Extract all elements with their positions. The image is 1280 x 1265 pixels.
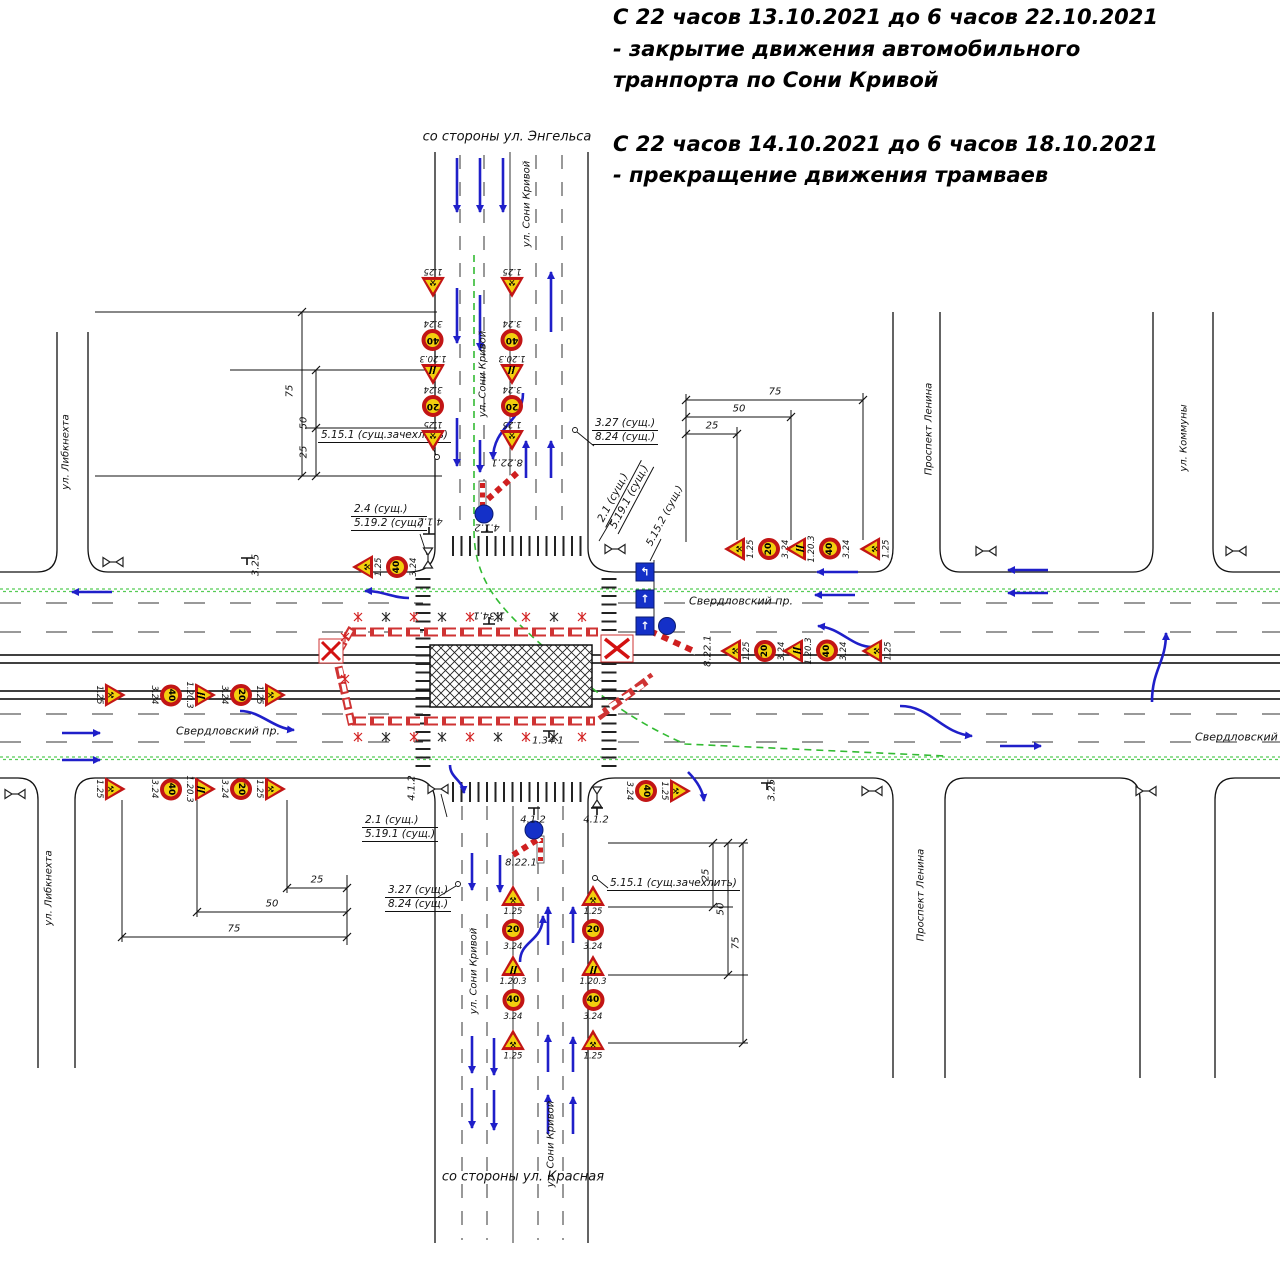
road-narrows-sign-icon — [195, 683, 216, 707]
dim-25: 25 — [299, 446, 310, 459]
label-kommuny: ул. Коммуны — [1179, 404, 1190, 471]
sign-code: 1.20.3 — [499, 978, 526, 987]
sign-code: 1.20.3 — [808, 535, 817, 562]
sign-code: 3.24 — [504, 1013, 523, 1022]
road-narrows-sign-icon — [421, 364, 445, 385]
sign-post-40-narrow: 1.20.3 40 3.24 — [150, 775, 216, 802]
notice-tram-stop: С 22 часов 14.10.2021 до 6 часов 18.10.2… — [613, 129, 1158, 192]
sign-code: 3.24 — [424, 319, 443, 328]
roadworks-sign-icon: ⚒ — [859, 537, 880, 561]
speed-limit-20-sign: 20 — [502, 919, 524, 941]
annotation-325: 3.25 — [251, 554, 262, 576]
road-narrows-sign-icon — [581, 955, 605, 976]
speed-limit-40-sign: 40 — [161, 684, 183, 706]
sign-post-40-works: ⚒ 1.25 40 3.24 — [352, 555, 418, 579]
speed-limit-40-sign: 40 — [636, 780, 658, 802]
sign-post-40-narrow: 1.20.3 40 3.24 — [499, 955, 526, 1021]
roadworks-sign-icon: ⚒ — [352, 555, 373, 579]
closed-x-sign-left — [319, 639, 343, 663]
sign-post-40-works: ⚒ 1.25 40 3.24 — [625, 779, 691, 803]
sign-code: 3.24 — [503, 319, 522, 328]
annotation-1341: 1.34.1 — [532, 736, 564, 747]
traffic-scheme-canvas: С 22 часов 13.10.2021 до 6 часов 22.10.2… — [0, 0, 1280, 1265]
dim-50: 50 — [733, 404, 746, 415]
sign-code: 1.25 — [424, 420, 443, 429]
sign-code: 3.24 — [220, 780, 229, 799]
label-soni-krivoy: ул. Сони Кривой — [478, 331, 489, 417]
annotation-24-5192: 2.4 (сущ.) 5.19.2 (сущ.) — [351, 503, 427, 531]
sign-code: 3.24 — [220, 686, 229, 705]
annotation-325: 3.25 — [767, 779, 778, 801]
annotation-8221: 8.22.1 — [703, 635, 714, 667]
road-narrows-sign-icon — [782, 639, 803, 663]
annotation-327-824: 3.27 (сущ.) 8.24 (сущ.) — [592, 417, 658, 445]
speed-limit-40-sign: 40 — [582, 989, 604, 1011]
annotation-21-5191: 2.1 (сущ.) 5.19.1 (сущ.) — [362, 814, 438, 842]
obstacle-marker-top — [475, 473, 517, 523]
label-from-krasnaya: со стороны ул. Красная — [442, 1170, 604, 1185]
sign-code: 3.24 — [504, 943, 523, 952]
sign-code: 1.25 — [584, 908, 603, 917]
road-narrows-sign-icon — [785, 537, 806, 561]
sign-code: 1.25 — [255, 780, 264, 799]
sign-code: 1.20.3 — [185, 681, 194, 708]
label-sverdlovsky: Свердловский пр. — [689, 595, 793, 608]
sign-post-40-narrow: 1.20.3 40 3.24 — [785, 535, 851, 562]
turn-arrow-icon: ↰ — [640, 566, 649, 579]
sign-post-roadworks: ⚒ 1.25 — [94, 683, 126, 707]
sign-code: 1.25 — [503, 420, 522, 429]
sign-code: 1.25 — [424, 266, 443, 275]
label-from-engels: со стороны ул. Энгельса — [423, 130, 592, 145]
sign-post-roadworks: ⚒ 1.25 — [421, 266, 445, 298]
sign-post-roadworks: ⚒ 1.25 — [859, 537, 891, 561]
sign-code: 1.25 — [375, 558, 384, 577]
sign-post-roadworks: ⚒ 1.25 — [861, 639, 893, 663]
roadworks-sign-icon: ⚒ — [581, 885, 605, 906]
sign-post-roadworks: ⚒ 1.25 — [501, 1029, 525, 1061]
sign-post-40-narrow: 1.20.3 40 3.24 — [579, 955, 606, 1021]
roadworks-sign-icon: ⚒ — [500, 277, 524, 298]
sign-code: 1.25 — [660, 782, 669, 801]
sign-post-20-works: ⚒ 1.25 20 3.24 — [500, 385, 524, 451]
sign-post-40-narrow: 1.20.3 40 3.24 — [150, 681, 216, 708]
roadworks-sign-icon: ⚒ — [581, 1029, 605, 1050]
annotation-1341: 1.34.1 — [473, 610, 505, 621]
sign-code: 1.25 — [884, 642, 893, 661]
sign-code: 3.24 — [410, 558, 419, 577]
sign-code: 1.25 — [504, 908, 523, 917]
roadworks-sign-icon: ⚒ — [421, 430, 445, 451]
speed-limit-20-sign: 20 — [582, 919, 604, 941]
lane-sign-5152-straight: ↑ — [636, 590, 655, 609]
label-soni-krivoy: ул. Сони Кривой — [522, 161, 533, 247]
sign-code: 3.24 — [625, 782, 634, 801]
closed-x-sign-right — [601, 635, 633, 662]
sign-code: 1.25 — [255, 686, 264, 705]
sign-code: 1.25 — [584, 1052, 603, 1061]
obstacle-marker-right — [650, 618, 696, 653]
annotation-412: 4.1.2 — [520, 815, 545, 826]
label-lenina: Проспект Ленина — [916, 849, 927, 942]
dim-25: 25 — [706, 421, 719, 432]
annotation-412: 4.1.2 — [583, 815, 608, 826]
sign-code: 1.25 — [503, 266, 522, 275]
sign-code: 1.25 — [504, 1052, 523, 1061]
sign-code: 3.24 — [503, 385, 522, 394]
sign-post-40-narrow: 1.20.3 40 3.24 — [498, 319, 525, 385]
roadworks-sign-icon: ⚒ — [501, 885, 525, 906]
dim-75: 75 — [228, 924, 241, 935]
sign-post-20-works: ⚒ 1.25 20 3.24 — [501, 885, 525, 951]
annotation-412: 4.1.2 — [474, 522, 499, 533]
roadworks-sign-icon: ⚒ — [265, 777, 286, 801]
speed-limit-20-sign: 20 — [231, 684, 253, 706]
speed-limit-40-sign: 40 — [819, 538, 841, 560]
roadworks-sign-icon: ⚒ — [501, 1029, 525, 1050]
roadworks-sign-icon: ⚒ — [724, 537, 745, 561]
roadworks-sign-icon: ⚒ — [265, 683, 286, 707]
sign-code: 3.24 — [150, 686, 159, 705]
speed-limit-20-sign: 20 — [231, 778, 253, 800]
annotation-412: 4.1.2 — [407, 775, 418, 800]
road-narrows-sign-icon — [195, 777, 216, 801]
straight-arrow-icon: ↑ — [640, 620, 649, 633]
sign-post-40-narrow: 1.20.3 40 3.24 — [419, 319, 446, 385]
sign-code: 1.20.3 — [579, 978, 606, 987]
sign-code: 1.20.3 — [419, 354, 446, 363]
closure-notice: С 22 часов 13.10.2021 до 6 часов 22.10.2… — [613, 2, 1158, 224]
roadworks-sign-icon: ⚒ — [421, 277, 445, 298]
sign-code: 1.25 — [882, 540, 891, 559]
road-narrows-sign-icon — [501, 955, 525, 976]
label-soni-krivoy: ул. Сони Кривой — [469, 928, 480, 1014]
sign-post-roadworks: ⚒ 1.25 — [94, 777, 126, 801]
label-sverdlovsky: Свердловский пр. — [176, 725, 280, 738]
sign-code: 1.25 — [747, 540, 756, 559]
dim-50: 50 — [299, 417, 310, 430]
sign-post-20-works: ⚒ 1.25 20 3.24 — [220, 777, 286, 801]
dim-50: 50 — [716, 903, 727, 916]
sign-post-20-works: ⚒ 1.25 20 3.24 — [581, 885, 605, 951]
sign-post-20-works: ⚒ 1.25 20 3.24 — [220, 683, 286, 707]
sign-post-40-narrow: 1.20.3 40 3.24 — [782, 637, 848, 664]
sign-code: 3.24 — [150, 780, 159, 799]
dim-75: 75 — [731, 937, 742, 950]
dim-75: 75 — [285, 385, 296, 398]
dim-75: 75 — [769, 387, 782, 398]
speed-limit-40-sign: 40 — [501, 330, 523, 352]
dim-50: 50 — [266, 899, 279, 910]
lane-sign-5152-turn: ↰ — [636, 563, 655, 582]
label-sverdlovsky: Свердловский пр. — [1195, 731, 1280, 744]
sign-code: 3.24 — [840, 642, 849, 661]
roadworks-sign-icon: ⚒ — [861, 639, 882, 663]
sign-post-roadworks: ⚒ 1.25 — [581, 1029, 605, 1061]
sign-code: 1.20.3 — [805, 637, 814, 664]
speed-limit-20-sign: 20 — [754, 640, 776, 662]
sign-code: 3.24 — [424, 385, 443, 394]
roadworks-sign-icon: ⚒ — [670, 779, 691, 803]
speed-limit-40-sign: 40 — [422, 330, 444, 352]
annotation-8221: 8.22.1 — [491, 457, 523, 468]
label-soni-krivoy: ул. Сони Кривой — [546, 1101, 557, 1187]
notice-road-closure: С 22 часов 13.10.2021 до 6 часов 22.10.2… — [613, 2, 1158, 97]
label-libknehta: ул. Либкнехта — [61, 414, 72, 489]
sign-post-20-works: ⚒ 1.25 20 3.24 — [421, 385, 445, 451]
dim-25: 25 — [311, 875, 324, 886]
sign-code: 3.24 — [584, 943, 603, 952]
signal-symbols — [5, 525, 1246, 815]
sign-code: 1.20.3 — [498, 354, 525, 363]
lane-sign-5152-straight: ↑ — [636, 617, 655, 636]
sign-code: 1.25 — [743, 642, 752, 661]
roadworks-sign-icon: ⚒ — [500, 430, 524, 451]
label-lenina: Проспект Ленина — [924, 383, 935, 476]
label-libknehta: ул. Либкнехта — [44, 850, 55, 925]
sign-code: 1.20.3 — [185, 775, 194, 802]
roadworks-sign-icon: ⚒ — [105, 777, 126, 801]
sign-code: 1.25 — [94, 686, 103, 705]
road-narrows-sign-icon — [500, 364, 524, 385]
closed-work-zone — [319, 473, 696, 863]
straight-arrow-icon: ↑ — [640, 593, 649, 606]
sign-code: 3.24 — [584, 1013, 603, 1022]
detour-sign-icon — [659, 618, 676, 635]
annotation-412: 4.1.2 — [417, 516, 442, 527]
speed-limit-40-sign: 40 — [386, 556, 408, 578]
speed-limit-20-sign: 20 — [501, 396, 523, 418]
speed-limit-40-sign: 40 — [816, 640, 838, 662]
sign-code: 1.25 — [94, 780, 103, 799]
detour-sign-icon — [475, 505, 493, 523]
annotation-8221: 8.22.1 — [505, 858, 537, 869]
sign-post-roadworks: ⚒ 1.25 — [500, 266, 524, 298]
sign-post-20-works: ⚒ 1.25 20 3.24 — [720, 639, 786, 663]
hatched-closure-area — [430, 645, 592, 707]
sign-code: 3.24 — [843, 540, 852, 559]
roadworks-sign-icon: ⚒ — [720, 639, 741, 663]
roadworks-sign-icon: ⚒ — [105, 683, 126, 707]
annotation-327-824: 3.27 (сущ.) 8.24 (сущ.) — [385, 884, 451, 912]
speed-limit-40-sign: 40 — [502, 989, 524, 1011]
sign-post-20-works: ⚒ 1.25 20 3.24 — [724, 537, 790, 561]
speed-limit-40-sign: 40 — [161, 778, 183, 800]
speed-limit-20-sign: 20 — [422, 396, 444, 418]
speed-limit-20-sign: 20 — [758, 538, 780, 560]
annotation-5151-cover: 5.15.1 (сущ.зачехлить) — [607, 877, 740, 891]
